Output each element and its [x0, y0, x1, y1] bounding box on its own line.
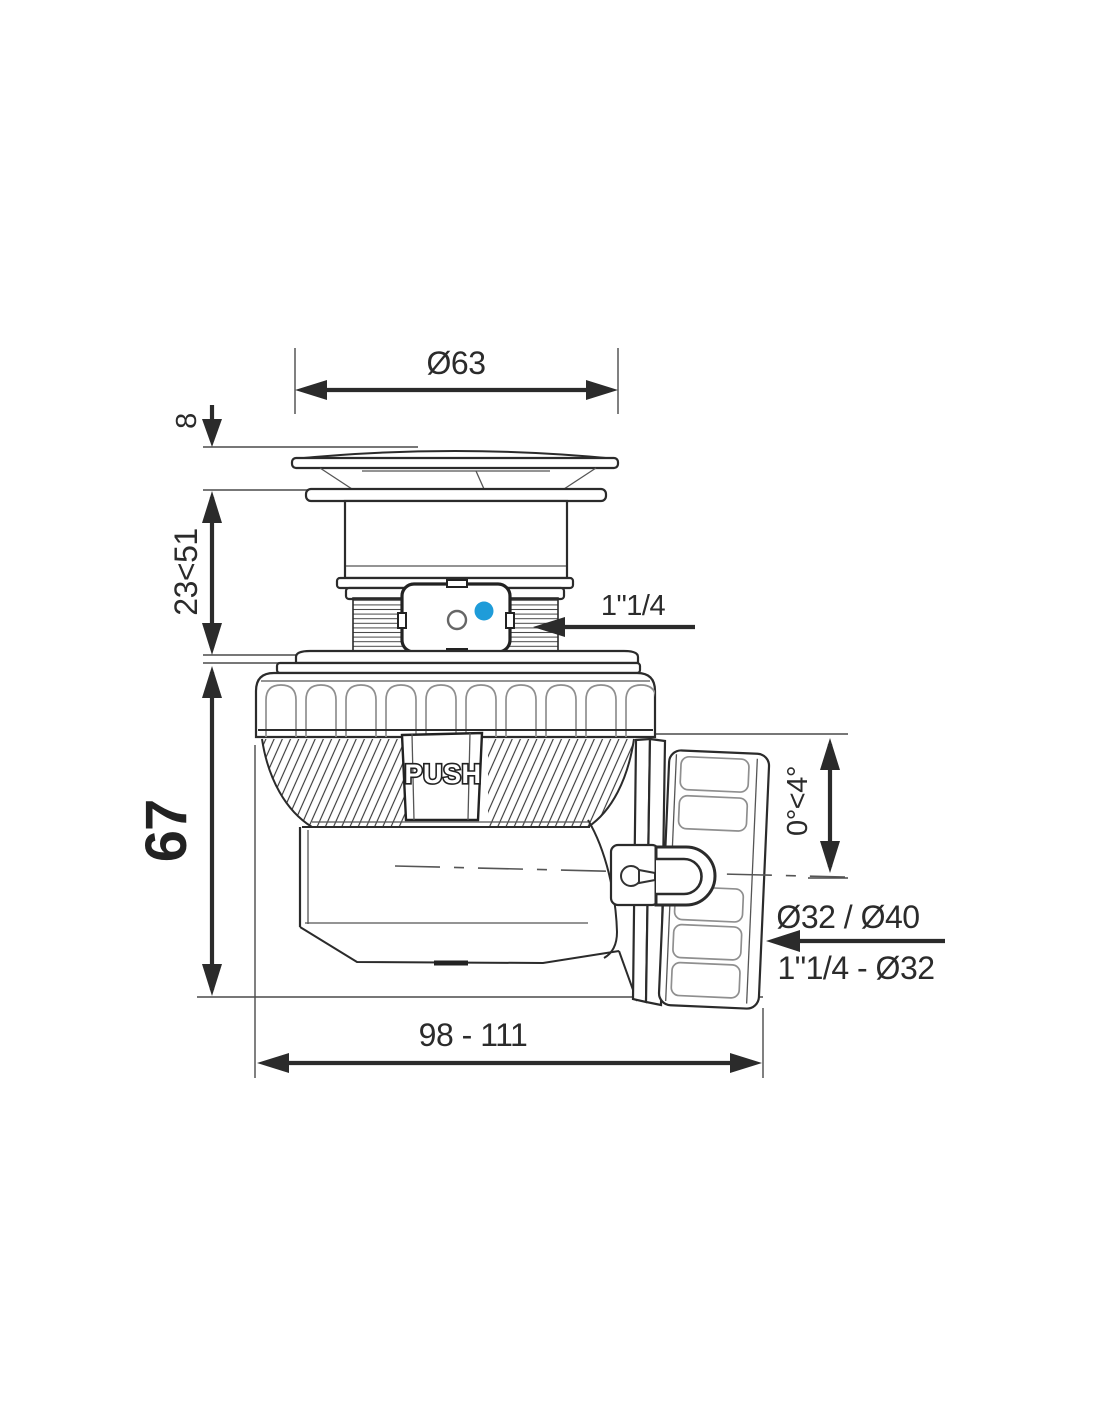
badge-left-notch	[398, 613, 406, 628]
outlet-diameters-label: Ø32 / Ø40	[776, 899, 919, 935]
keyhole-slot	[639, 870, 655, 883]
overall-length-label: 98 - 111	[419, 1017, 528, 1053]
badge-white-dot	[448, 611, 466, 629]
badge-blue-dot	[475, 602, 494, 621]
keyhole-bracket	[611, 845, 659, 905]
inlet-thread-label: 1"1/4	[601, 590, 666, 622]
technical-drawing-page: PUSH	[0, 0, 1100, 1422]
cap-diameter-label: Ø63	[427, 345, 486, 381]
push-tab: PUSH	[402, 733, 482, 820]
badge-right-notch	[506, 613, 514, 628]
outlet-thread-label: 1"1/4 - Ø32	[777, 950, 934, 986]
body-height-label: 67	[134, 800, 199, 863]
cap-thickness-label: 8	[171, 413, 203, 429]
dim-outlet-connection: Ø32 / Ø40 1"1/4 - Ø32	[766, 899, 945, 986]
push-label: PUSH	[404, 759, 481, 789]
flange	[277, 651, 640, 673]
retaining-clip	[656, 847, 715, 905]
adjust-range-label: 23<51	[168, 528, 204, 615]
union-nut	[256, 673, 656, 737]
outlet-angle-label: 0°<4°	[782, 766, 814, 836]
badge-top-notch	[447, 580, 467, 587]
drain-fitting-technical-drawing: PUSH	[0, 0, 1100, 1422]
